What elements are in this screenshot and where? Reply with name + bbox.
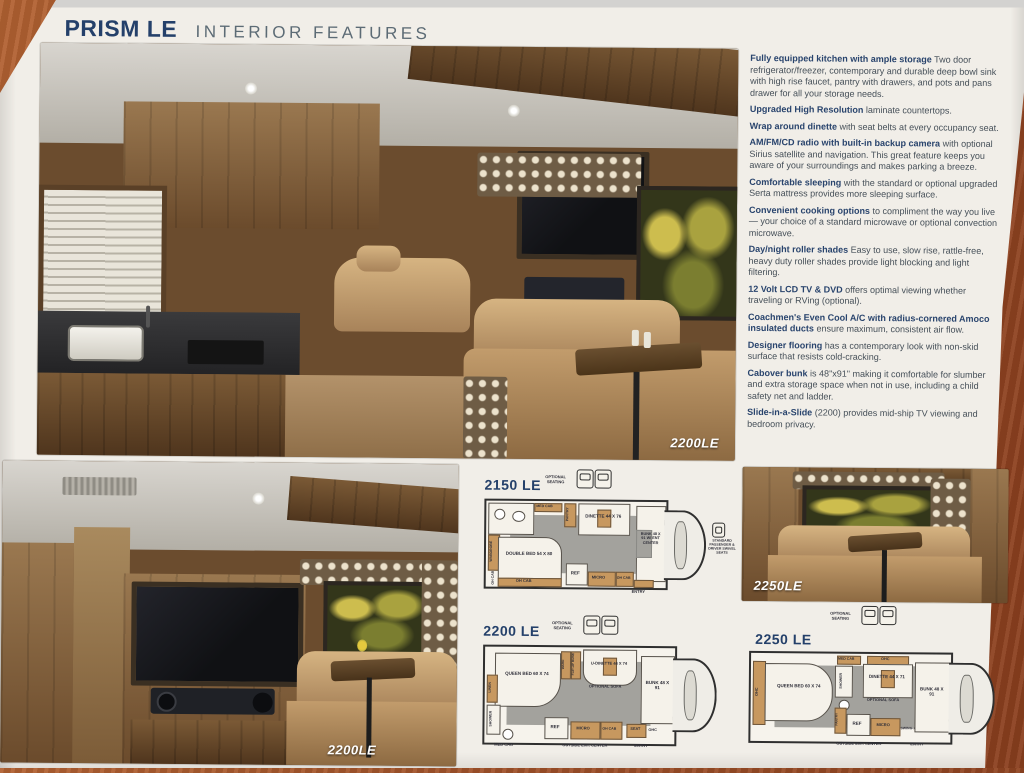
floorplan-label: U-DINETTE 44 X 74 <box>585 661 633 666</box>
feature-item: Day/night roller shades Easy to use, slo… <box>748 244 1002 281</box>
floorplan-label: PANTRY <box>565 505 569 523</box>
cabinet-doors <box>130 719 292 764</box>
floorplans-middle-column: 2150 LE OPTIONAL SEATING WARDROBE DOUBLE… <box>478 465 739 771</box>
vehicle-cab <box>672 658 717 732</box>
floorplan-label: DINETTE 44 X 76 <box>580 513 626 519</box>
kitchen-window-blinds <box>38 185 167 322</box>
swivel-seat-icon <box>712 523 725 538</box>
page-title: PRISM LE <box>64 15 177 42</box>
floorplan-label: REF <box>550 724 559 729</box>
feature-item: AM/FM/CD radio with built-in backup came… <box>749 137 1003 174</box>
pillow <box>356 245 400 271</box>
floorplan-label: OUTSIDE ENT. CENTER <box>562 743 607 748</box>
bathroom <box>488 503 534 535</box>
floorplan-label: OH CAB <box>602 727 616 731</box>
floorplan-label: MED CAB <box>536 504 552 508</box>
interior-photo-main-2200le: 2200LE <box>37 43 739 461</box>
page-subtitle: INTERIOR FEATURES <box>196 22 431 43</box>
interior-photo-2250le: 2250LE <box>742 467 1009 603</box>
feature-item: Comfortable sleeping with the standard o… <box>749 176 1003 201</box>
interior-photo-bottom-2200le: 2200LE <box>0 460 459 766</box>
ceiling-light-icon <box>252 493 264 505</box>
floorplan-label: WARDROBE <box>489 537 493 567</box>
floorplan-label: STANDARD PASSENGER & DRIVER SWIVEL SEATS <box>708 539 736 555</box>
feature-item: Designer flooring has a contemporary loo… <box>748 339 1002 364</box>
feature-item: Wrap around dinette with seat belts at e… <box>750 120 1004 134</box>
floorplan-label: PANTRY <box>835 710 839 730</box>
feature-list: Fully equipped kitchen with ample storag… <box>747 53 1004 437</box>
entry-step-block <box>634 580 654 588</box>
wardrobe-cabinet <box>0 542 74 763</box>
header: PRISM LE INTERIOR FEATURES <box>64 15 430 45</box>
valance-pattern <box>477 152 641 197</box>
flower-vase-icon <box>357 639 367 651</box>
photo-caption: 2200LE <box>670 435 719 450</box>
floorplan-label: BUNK 48 X 91 <box>645 680 670 691</box>
feature-item: Coachmen's Even Cool A/C with radius-cor… <box>748 311 1002 336</box>
floorplan-label: OUTSIDE ENT. CENTER <box>836 742 881 747</box>
floorplan-label: ENTRY <box>634 744 647 749</box>
queen-bed-block <box>495 653 561 708</box>
vehicle-cab <box>664 510 707 580</box>
feature-item: Upgraded High Resolution laminate counte… <box>750 104 1004 118</box>
floorplan-label: FLIP-UP BUNK <box>572 652 576 676</box>
floorplan-title-2150le: 2150 LE <box>484 477 541 493</box>
floorplan-label: OPTIONAL SEATING <box>823 612 857 621</box>
floorplan-label: REF <box>852 721 861 726</box>
seat-icon <box>583 615 600 634</box>
floorplan-label: DOUBLE BED 54 X 80 <box>504 551 554 557</box>
tv-screen <box>131 581 304 686</box>
sink-icon <box>512 511 525 522</box>
table-pedestal <box>882 550 887 602</box>
seat-icon <box>861 606 878 625</box>
double-bed-block <box>498 537 562 580</box>
brochure-content: PRISM LE INTERIOR FEATURES 2200LE Fully … <box>0 0 1024 773</box>
toilet-icon <box>502 729 513 740</box>
ceiling-light-icon <box>245 82 257 94</box>
floorplan-label: SHOWER <box>488 707 492 731</box>
floorplan-label: OPTIONAL SOFA <box>867 698 900 703</box>
feature-item: Fully equipped kitchen with ample storag… <box>750 53 1004 101</box>
lower-cabinets <box>37 373 286 457</box>
feature-item: Cabover bunk is 48"x91" making it comfor… <box>747 367 1001 404</box>
floorplan-label: OHC <box>881 657 889 661</box>
seat-icon <box>879 606 896 625</box>
feature-item: 12 Volt LCD TV & DVD offers optimal view… <box>748 283 1002 308</box>
floorplan-title-2200le: 2200 LE <box>483 623 540 639</box>
floorplan-label: SEAT <box>630 727 640 731</box>
kitchen-sink <box>68 325 144 362</box>
floorplan-label: LINEN <box>488 677 492 699</box>
feature-item: Convenient cooking options to compliment… <box>749 204 1003 241</box>
floorplan-label: REF <box>571 570 580 575</box>
floorplan-label: QUEEN BED 60 X 74 <box>771 683 827 689</box>
vehicle-cab <box>948 663 995 735</box>
floorplan-label: BUNK 48 X 91 <box>919 686 945 697</box>
dinette-window-foliage <box>323 581 432 656</box>
floorplan-label: ENTRY <box>632 590 645 595</box>
candle-glasses-icon <box>632 330 639 346</box>
floorplan-label: DINETTE 44 X 71 <box>865 674 909 680</box>
ceiling-light-icon <box>508 105 520 117</box>
queen-bed-block <box>765 663 834 722</box>
cabover-bunk-cushion <box>334 257 471 332</box>
floorplan-2250le-area: OPTIONAL SEATING 2250 LE OHC QUEEN BED 6… <box>740 603 1011 773</box>
floorplan-label: OH CAB <box>491 571 495 585</box>
seat-icon <box>595 470 612 489</box>
dinette-table <box>331 658 416 682</box>
photo-caption: 2250LE <box>754 578 803 593</box>
floorplan-label: MICRO <box>876 723 889 728</box>
faucet-icon <box>146 306 150 328</box>
seat-icon <box>601 616 618 635</box>
floorplan-label: MED CAB <box>494 743 513 748</box>
floorplan-label: MED CAB <box>838 657 854 661</box>
dinette-side-pattern <box>463 376 508 458</box>
floorplan-label: SHOWER <box>839 668 843 694</box>
floorplan-2150le: WARDROBE DOUBLE BED 54 X 80 OH CAB OH CA… <box>484 499 669 591</box>
floorplan-label: OH CAB <box>516 579 532 584</box>
floorplan-label: WARD <box>562 653 566 675</box>
floorplan-label: OH CAB <box>617 576 631 580</box>
speaker-icon <box>157 692 177 712</box>
shower-block <box>835 666 853 698</box>
stove-cooktop <box>188 340 264 365</box>
floorplan-2200le: QUEEN BED 60 X 74 LINEN SHOWER WARD FLIP… <box>482 645 677 747</box>
feature-item: Slide-in-a-Slide (2200) provides mid-shi… <box>747 407 1001 432</box>
floorplan-label: MICRO <box>576 726 589 731</box>
toilet-icon <box>494 509 505 520</box>
floorplan-label: BUNK 48 X 91 W/ ENT CENTER <box>638 532 663 545</box>
floorplan-label: OHC <box>755 683 760 701</box>
ceiling-vent <box>62 477 136 496</box>
floorplan-label: MICRO <box>592 576 605 581</box>
floorplan-label: OPTIONAL SEATING <box>545 621 579 630</box>
floorplan-2250le: OHC QUEEN BED 60 X 74 MED CAB SHOWER OHC… <box>748 651 953 745</box>
table-pedestal <box>633 372 640 460</box>
bunk-block <box>914 662 951 732</box>
floorplan-label: QUEEN BED 60 X 74 <box>499 671 555 677</box>
photo-caption: 2200LE <box>328 742 377 757</box>
floorplan-label: OPTIONAL SEATING <box>539 475 573 484</box>
floorplan-label: OPTIONAL SOFA <box>589 684 622 689</box>
seat-icon <box>577 469 594 488</box>
floorplan-label: OHC <box>648 728 656 732</box>
floorplan-label: ENTRY <box>910 742 923 747</box>
floorplan-title-2250le: 2250 LE <box>755 631 812 647</box>
